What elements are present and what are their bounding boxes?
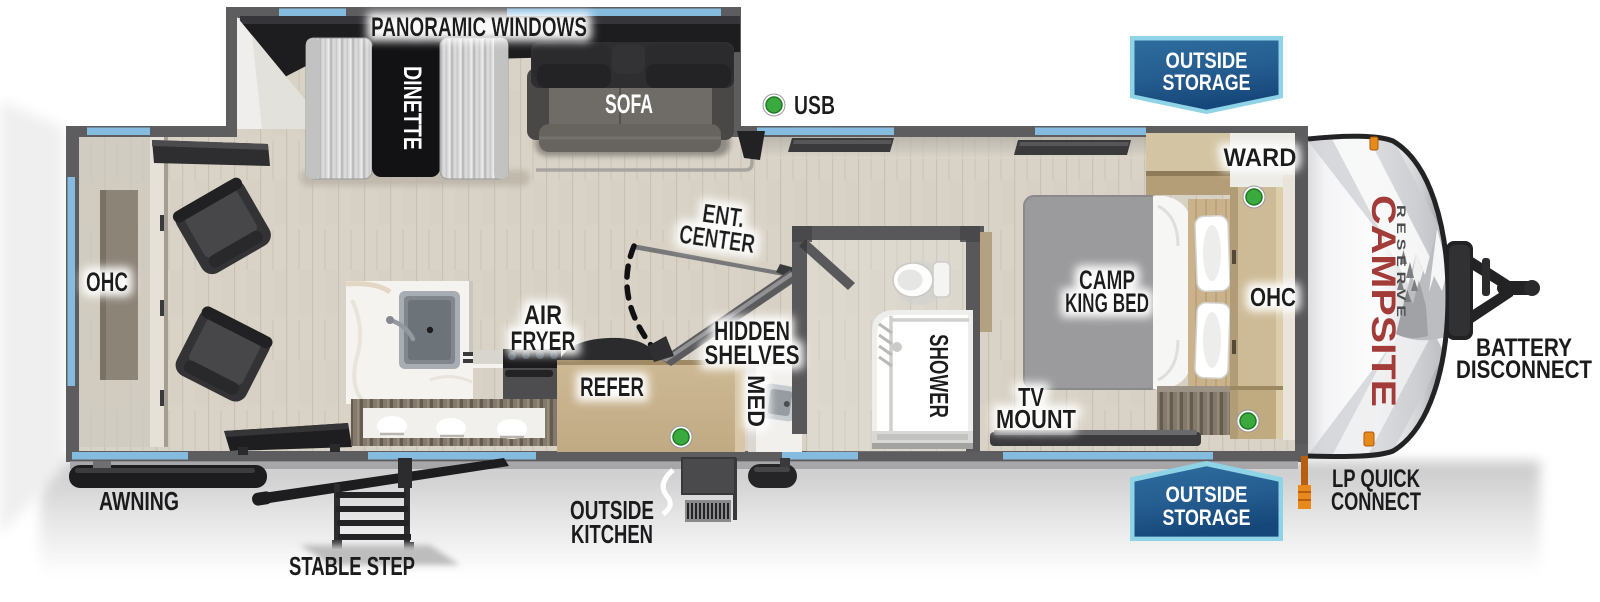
- svg-text:SHELVES: SHELVES: [705, 340, 800, 370]
- svg-text:STABLE STEP: STABLE STEP: [289, 551, 415, 581]
- svg-text:USB: USB: [794, 90, 835, 120]
- svg-text:DINETTE: DINETTE: [398, 66, 426, 150]
- svg-text:SHOWER: SHOWER: [924, 334, 954, 418]
- svg-text:KITCHEN: KITCHEN: [571, 519, 653, 549]
- svg-text:FRYER: FRYER: [511, 326, 576, 356]
- svg-text:DISCONNECT: DISCONNECT: [1456, 356, 1592, 384]
- svg-text:STORAGE: STORAGE: [1163, 505, 1251, 530]
- svg-text:PANORAMIC WINDOWS: PANORAMIC WINDOWS: [371, 12, 587, 42]
- svg-text:OHC: OHC: [86, 267, 128, 297]
- svg-text:WARD: WARD: [1224, 144, 1297, 172]
- svg-text:SOFA: SOFA: [605, 89, 653, 119]
- svg-text:OHC: OHC: [1250, 282, 1296, 312]
- svg-text:OUTSIDE: OUTSIDE: [1166, 482, 1248, 507]
- svg-text:R E S E R V E: R E S E R V E: [1394, 205, 1408, 317]
- svg-text:STORAGE: STORAGE: [1163, 70, 1251, 95]
- svg-text:AWNING: AWNING: [99, 486, 179, 516]
- svg-text:MOUNT: MOUNT: [996, 404, 1076, 434]
- svg-text:MED: MED: [742, 375, 769, 427]
- svg-text:KING BED: KING BED: [1065, 288, 1149, 318]
- svg-text:REFER: REFER: [580, 372, 644, 402]
- svg-text:CONNECT: CONNECT: [1331, 488, 1421, 516]
